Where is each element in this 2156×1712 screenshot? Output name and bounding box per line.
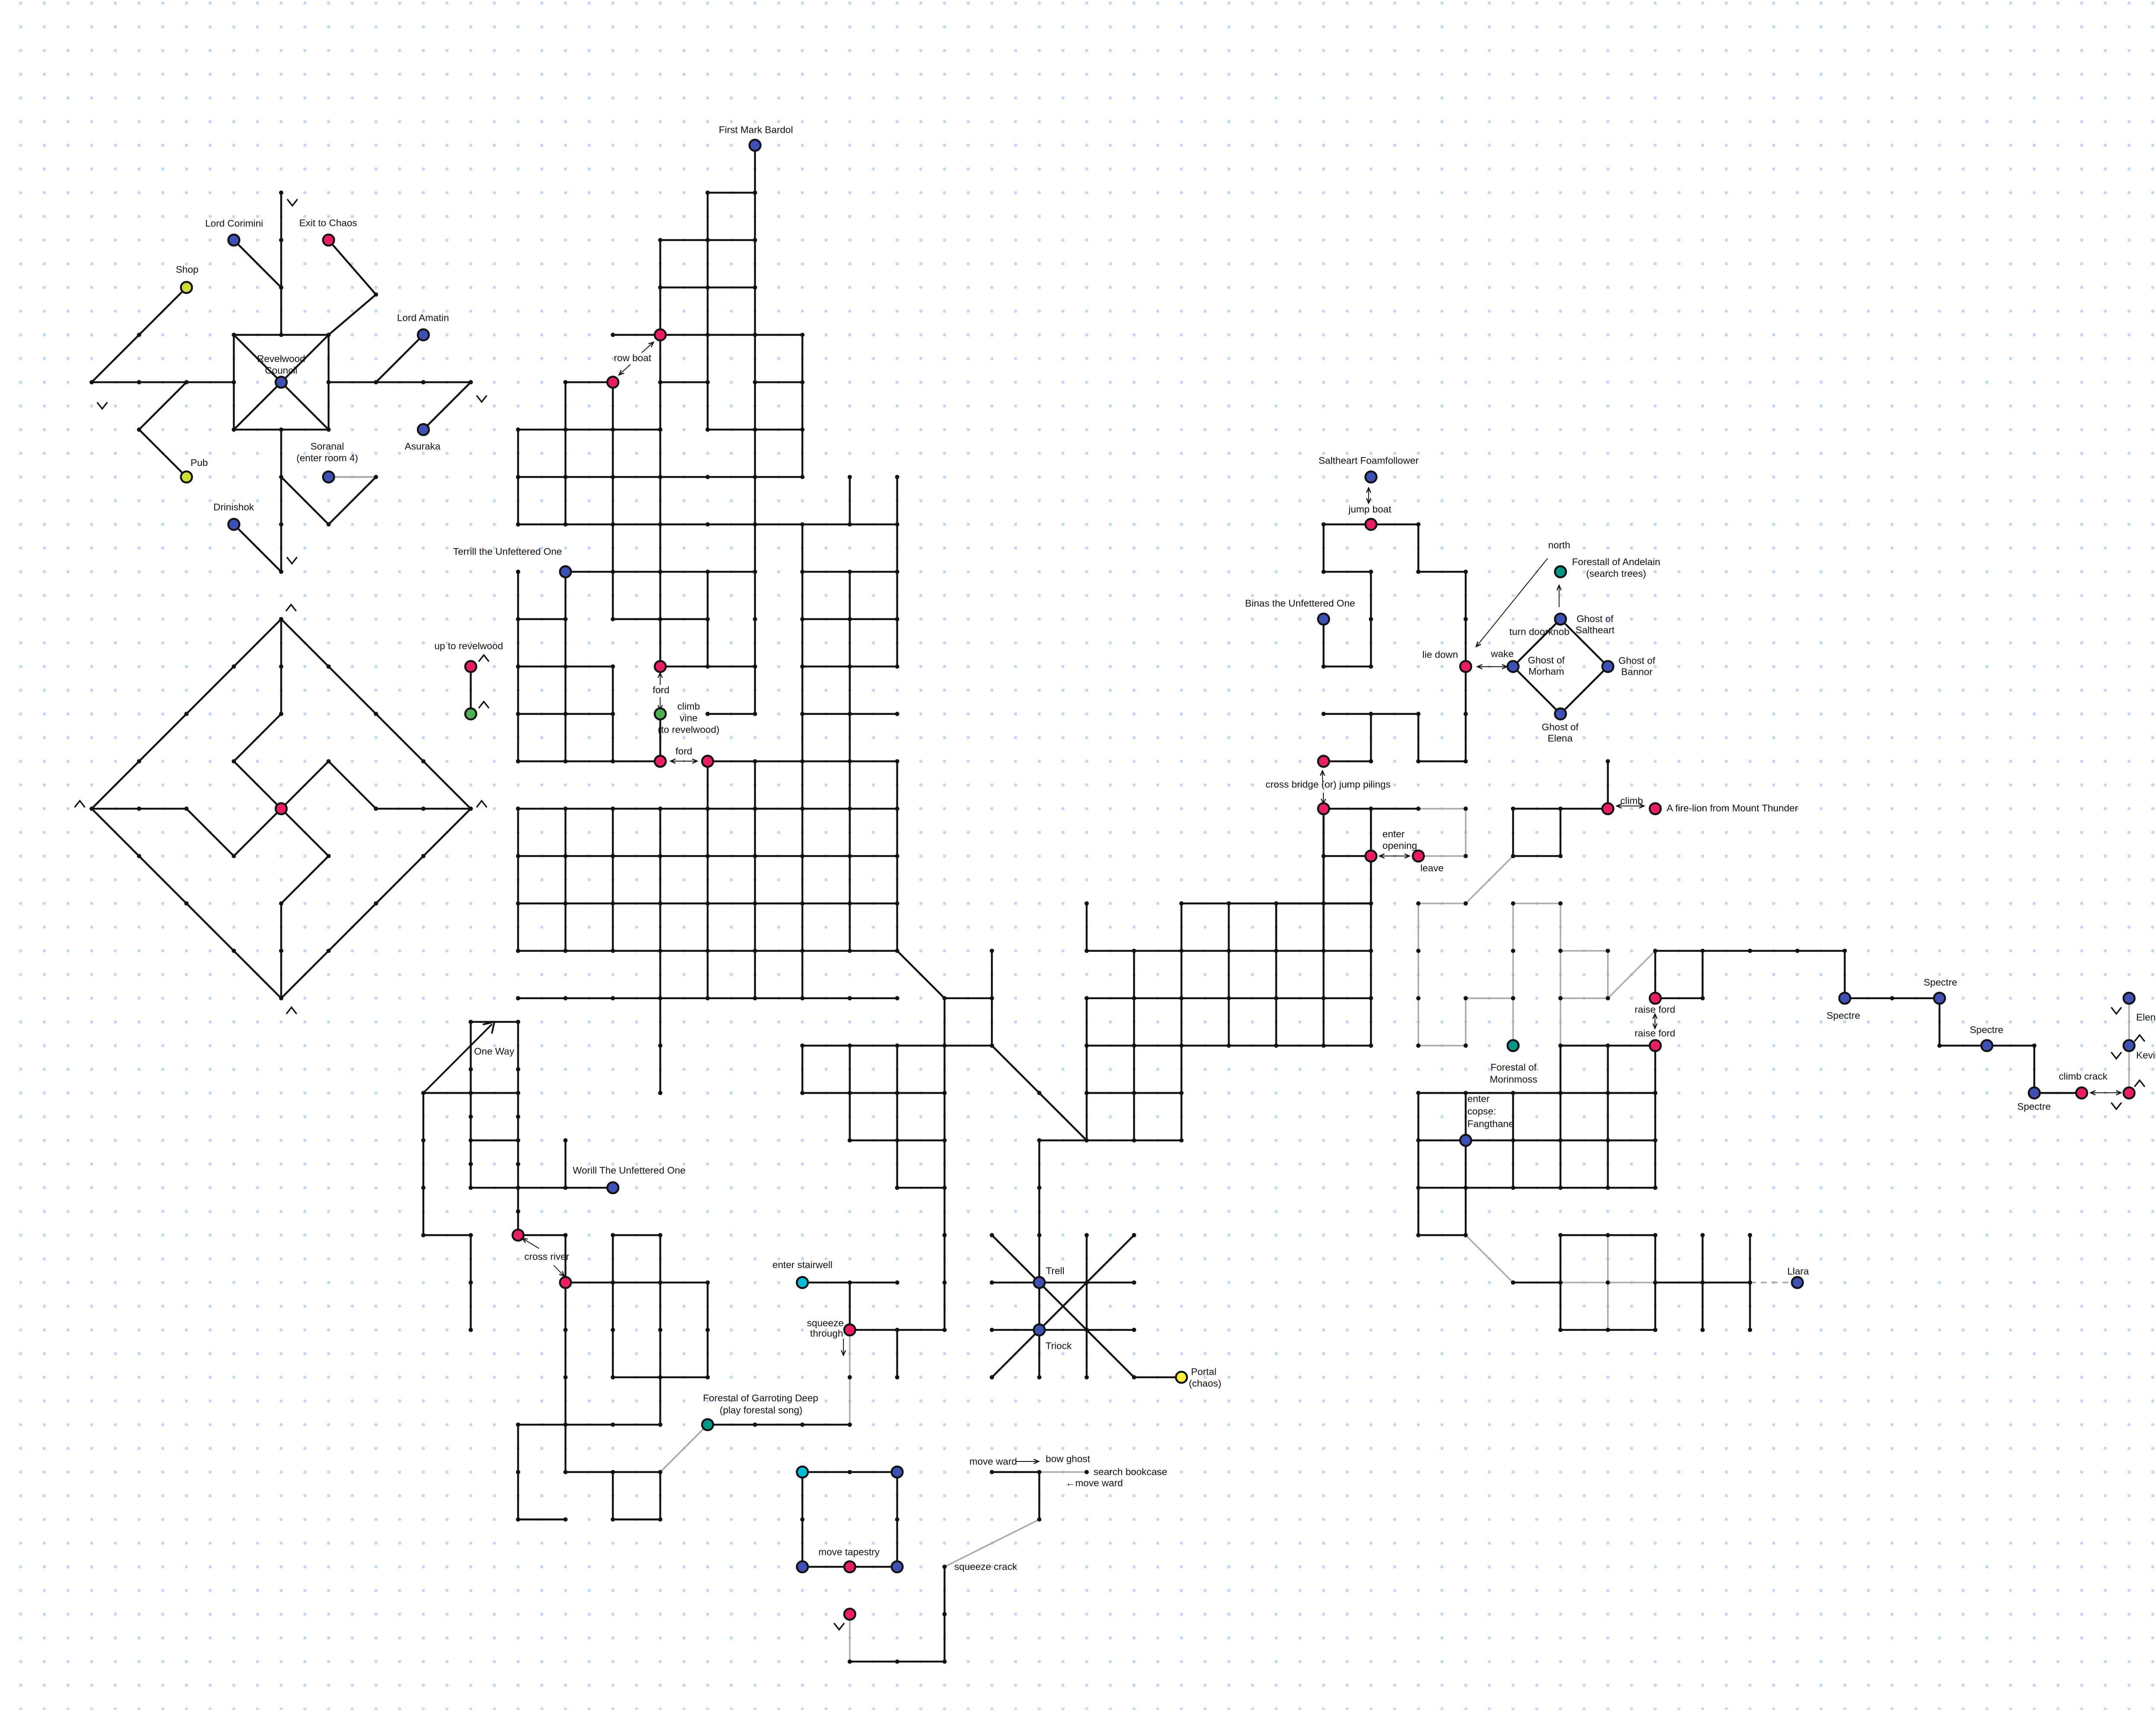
svg-text:Lord Corimini: Lord Corimini — [205, 218, 263, 229]
svg-text:Spectre: Spectre — [1924, 977, 1957, 988]
svg-text:wake: wake — [1491, 649, 1514, 659]
svg-text:Portal: Portal — [1191, 1367, 1216, 1377]
svg-text:Drinishok: Drinishok — [213, 502, 254, 513]
svg-text:Spectre: Spectre — [1970, 1025, 2003, 1035]
svg-text:move tapestry: move tapestry — [818, 1547, 880, 1558]
svg-text:Bannor: Bannor — [1621, 667, 1653, 677]
svg-text:Saltheart: Saltheart — [1576, 625, 1615, 636]
svg-text:Morinmoss: Morinmoss — [1490, 1074, 1537, 1085]
svg-text:Kevin --Glowing Emerald Green: Kevin --Glowing Emerald Green — [2136, 1050, 2156, 1061]
svg-text:cross river: cross river — [524, 1251, 570, 1262]
svg-text:Ghost of: Ghost of — [1542, 722, 1579, 733]
svg-text:Terrill the Unfettered One: Terrill the Unfettered One — [453, 546, 562, 557]
svg-text:Trell: Trell — [1046, 1266, 1064, 1276]
svg-text:climb: climb — [677, 701, 700, 712]
svg-text:(chaos): (chaos) — [1189, 1378, 1221, 1389]
svg-text:Fangthane: Fangthane — [1467, 1119, 1514, 1129]
svg-text:opening: opening — [1382, 840, 1417, 851]
svg-text:Exit to Chaos: Exit to Chaos — [299, 218, 357, 229]
svg-text:climb: climb — [1620, 796, 1643, 806]
svg-text:enter: enter — [1467, 1094, 1490, 1104]
svg-text:Morham: Morham — [1529, 666, 1564, 677]
svg-text:Asuraka: Asuraka — [405, 441, 441, 452]
svg-text:Soranal: Soranal — [310, 441, 344, 452]
svg-text:squeeze crack: squeeze crack — [954, 1561, 1017, 1572]
svg-text:Spectre: Spectre — [2017, 1101, 2051, 1112]
svg-text:squeeze: squeeze — [807, 1318, 843, 1329]
svg-text:through: through — [810, 1328, 843, 1339]
svg-text:Shop: Shop — [176, 264, 199, 275]
svg-text:Forestal of Garroting Deep: Forestal of Garroting Deep — [703, 1393, 818, 1404]
svg-text:First Mark Bardol: First Mark Bardol — [719, 125, 793, 135]
svg-text:Worill The Unfettered One: Worill The Unfettered One — [573, 1165, 686, 1176]
svg-text:Elena: Elena — [1548, 733, 1573, 744]
svg-text:bow ghost: bow ghost — [1046, 1454, 1091, 1464]
svg-text:raise ford: raise ford — [1635, 1004, 1675, 1015]
svg-text:enter stairwell: enter stairwell — [772, 1260, 832, 1270]
svg-text:ford: ford — [653, 685, 670, 696]
svg-text:north: north — [1548, 540, 1570, 551]
svg-text:vine: vine — [680, 713, 697, 724]
svg-text:←move ward: ←move ward — [1065, 1478, 1123, 1489]
svg-text:cross bridge (or) jump pilings: cross bridge (or) jump pilings — [1266, 779, 1391, 790]
svg-text:Ghost of: Ghost of — [1576, 614, 1614, 624]
svg-text:Elena --Glowing Emerald Green: Elena --Glowing Emerald Green — [2136, 1012, 2156, 1023]
svg-text:A fire-lion from Mount Thunder: A fire-lion from Mount Thunder — [1667, 803, 1798, 814]
svg-text:turn doorknob: turn doorknob — [1509, 627, 1569, 637]
svg-text:search bookcase: search bookcase — [1094, 1467, 1167, 1477]
svg-text:Pub: Pub — [191, 458, 208, 468]
svg-text:up to revelwood: up to revelwood — [434, 641, 503, 652]
svg-text:Council: Council — [265, 365, 297, 376]
svg-text:Triock: Triock — [1046, 1341, 1072, 1351]
svg-text:Forestall of Andelain: Forestall of Andelain — [1572, 557, 1661, 568]
svg-text:copse:: copse: — [1467, 1106, 1496, 1117]
svg-text:Ghost of: Ghost of — [1618, 655, 1655, 666]
svg-text:One Way: One Way — [474, 1046, 514, 1057]
svg-text:move ward: move ward — [969, 1456, 1017, 1467]
svg-text:(to revelwood): (to revelwood) — [658, 724, 719, 735]
svg-text:leave: leave — [1420, 863, 1444, 874]
svg-text:jump boat: jump boat — [1348, 504, 1391, 515]
svg-text:Llara: Llara — [1787, 1266, 1809, 1277]
svg-text:(play forestal song): (play forestal song) — [720, 1405, 802, 1416]
svg-text:Revelwood: Revelwood — [257, 354, 305, 364]
svg-text:Saltheart Foamfollower: Saltheart Foamfollower — [1319, 455, 1419, 466]
svg-text:(enter room 4): (enter room 4) — [296, 453, 358, 464]
svg-text:row boat: row boat — [614, 353, 652, 364]
svg-text:Forestal of: Forestal of — [1491, 1062, 1537, 1073]
svg-text:raise ford: raise ford — [1635, 1028, 1675, 1039]
svg-text:Spectre: Spectre — [1827, 1010, 1860, 1021]
svg-text:(search trees): (search trees) — [1586, 568, 1646, 579]
svg-text:lie down: lie down — [1423, 649, 1458, 660]
svg-text:Binas the Unfettered One: Binas the Unfettered One — [1245, 598, 1355, 609]
svg-text:Ghost of: Ghost of — [1528, 655, 1565, 666]
svg-text:enter: enter — [1382, 829, 1405, 840]
svg-text:climb crack: climb crack — [2059, 1071, 2108, 1082]
svg-text:Lord Amatin: Lord Amatin — [397, 313, 449, 323]
svg-text:ford: ford — [676, 746, 693, 757]
